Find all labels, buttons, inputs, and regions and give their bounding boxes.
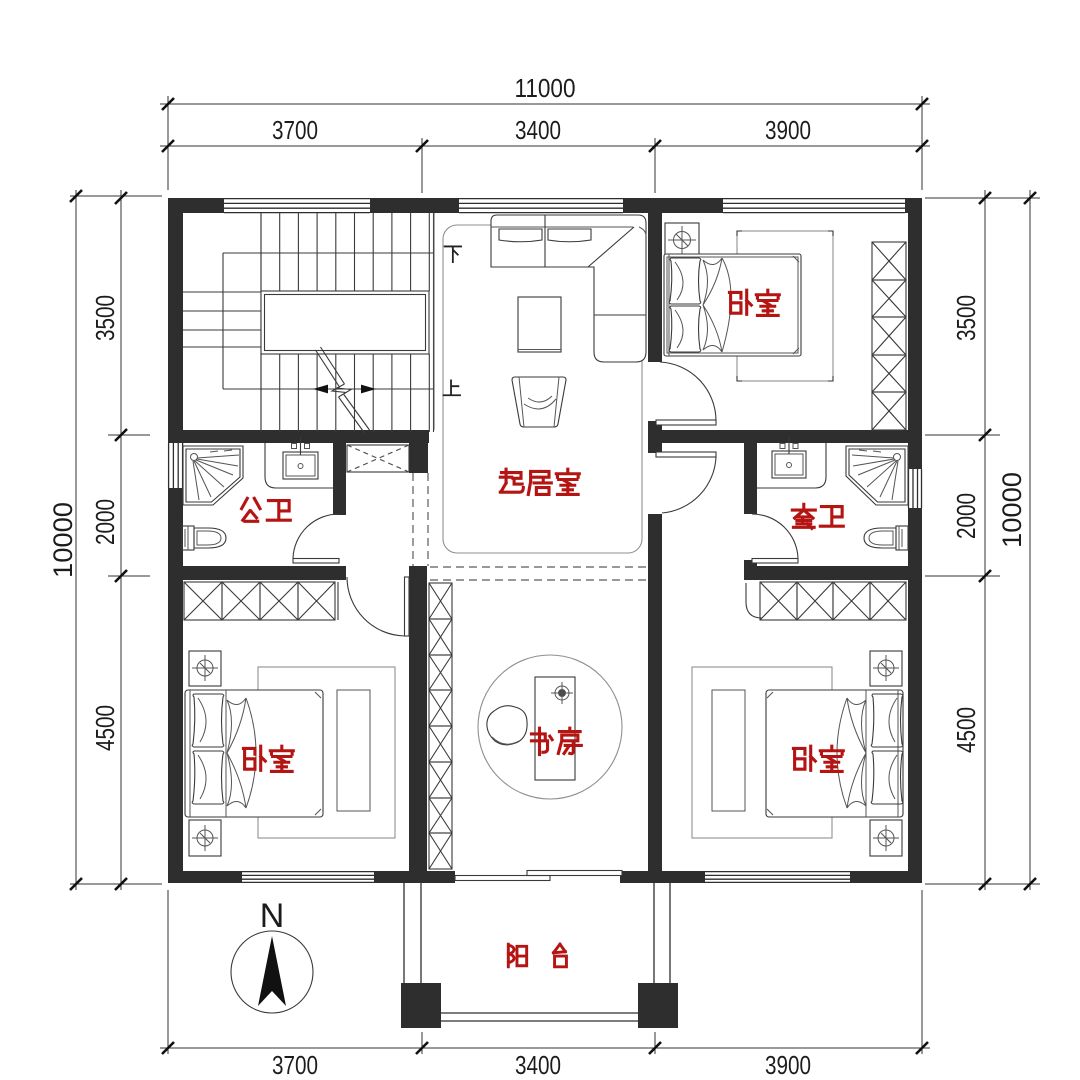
svg-text:10000: 10000 bbox=[48, 502, 78, 578]
svg-text:N: N bbox=[260, 897, 285, 935]
svg-text:3700: 3700 bbox=[272, 1052, 318, 1080]
svg-text:3500: 3500 bbox=[92, 295, 120, 341]
svg-text:4500: 4500 bbox=[92, 705, 120, 751]
svg-text:3400: 3400 bbox=[515, 117, 561, 145]
svg-text:4500: 4500 bbox=[953, 707, 981, 753]
svg-text:3900: 3900 bbox=[765, 117, 811, 145]
svg-text:3500: 3500 bbox=[953, 295, 981, 341]
svg-text:11000: 11000 bbox=[515, 75, 576, 103]
svg-text:2000: 2000 bbox=[953, 493, 981, 539]
svg-text:3700: 3700 bbox=[272, 117, 318, 145]
svg-text:3400: 3400 bbox=[515, 1052, 561, 1080]
svg-text:10000: 10000 bbox=[997, 472, 1027, 548]
svg-text:3900: 3900 bbox=[765, 1052, 811, 1080]
svg-text:2000: 2000 bbox=[92, 499, 120, 545]
